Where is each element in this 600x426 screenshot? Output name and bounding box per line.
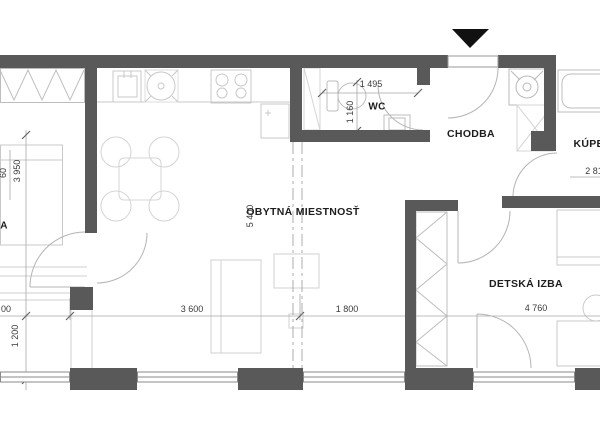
dining-set: [101, 137, 179, 221]
wall-wc-bottom: [302, 130, 430, 142]
dim-left-bottom: 1 200: [10, 325, 20, 348]
room-label-bathroom: KÚPEĽ: [573, 138, 600, 150]
wardrobe-icon: [0, 69, 85, 103]
kitchen-counter: [97, 102, 290, 138]
entrance-door-leaf: [448, 56, 498, 67]
wall-left-room: [85, 68, 97, 233]
washing-machine-icon: [509, 69, 545, 105]
wall-hall-bath: [544, 68, 556, 131]
round-hob-icon: [145, 70, 178, 102]
wall-pillar: [70, 287, 93, 310]
wall-bottom-1: [70, 368, 137, 390]
kids-bed: [557, 210, 600, 265]
window: [0, 372, 70, 382]
room-door-arc-b: [30, 232, 85, 287]
wall-top-right: [498, 55, 556, 68]
dim-left-height: 3 950: [12, 160, 22, 183]
dim-wc-depth: 1 160: [345, 101, 355, 124]
stove-icon: [211, 70, 251, 103]
bathtub-icon: [558, 70, 600, 112]
wall-bottom-4: [575, 368, 600, 390]
dim-living-width-a: 3 600: [181, 304, 204, 314]
balcony-door-arc: [477, 314, 531, 368]
dim-wc-width: 1 495: [360, 79, 383, 89]
room-label-wc: WC: [368, 102, 385, 113]
bed: [0, 145, 63, 245]
wall-kids-left: [405, 211, 416, 368]
section-lines: [293, 142, 302, 368]
dim-living-width-b: 1 800: [336, 304, 359, 314]
kids-desk: [557, 295, 600, 366]
room-label-hallway: CHODBA: [447, 128, 495, 140]
room-label-kids: DETSKÁ IZBA: [489, 278, 563, 290]
room-label-living: OBYTNÁ MIESTNOSŤ: [246, 206, 359, 218]
wall-bath-bottom: [502, 196, 600, 208]
kids-wardrobe-icon: [416, 212, 447, 366]
window: [473, 372, 575, 382]
wall-hall-bath-stub: [531, 131, 556, 151]
kids-door-arc: [458, 211, 510, 263]
dim-kids-width: 4 760: [525, 303, 548, 313]
wc-shaft: [304, 68, 320, 130]
bathroom-door-arc: [513, 153, 557, 197]
wall-wc-right-stub: [417, 68, 430, 85]
kitchen-sink-icon: [113, 71, 141, 102]
dim-bathroom-partial: 2 81: [585, 166, 600, 176]
dim-left-partial: 00: [1, 304, 11, 314]
aux-lines: [0, 267, 92, 368]
dimension-ticks: [22, 78, 422, 384]
dim-left-height-partial: 60: [0, 168, 8, 178]
entrance-arrow-icon: [452, 29, 489, 48]
wall-wc-left: [290, 68, 302, 142]
floor-plan: OBYTNÁ MIESTNOSŤ WC CHODBA KÚPEĽ DETSKÁ …: [0, 0, 600, 426]
room-door-arc-a: [97, 233, 147, 283]
room-label-left-partial: A: [0, 221, 8, 232]
dim-living-depth: 5 400: [245, 205, 255, 228]
sofa: [211, 254, 319, 353]
window: [137, 372, 238, 382]
wall-bottom-2: [238, 368, 303, 390]
wall-top-left: [0, 55, 448, 68]
window: [303, 372, 405, 382]
wall-bottom-3: [405, 368, 473, 390]
entrance-door-arc: [448, 68, 498, 118]
wall-kids-top: [405, 200, 458, 211]
